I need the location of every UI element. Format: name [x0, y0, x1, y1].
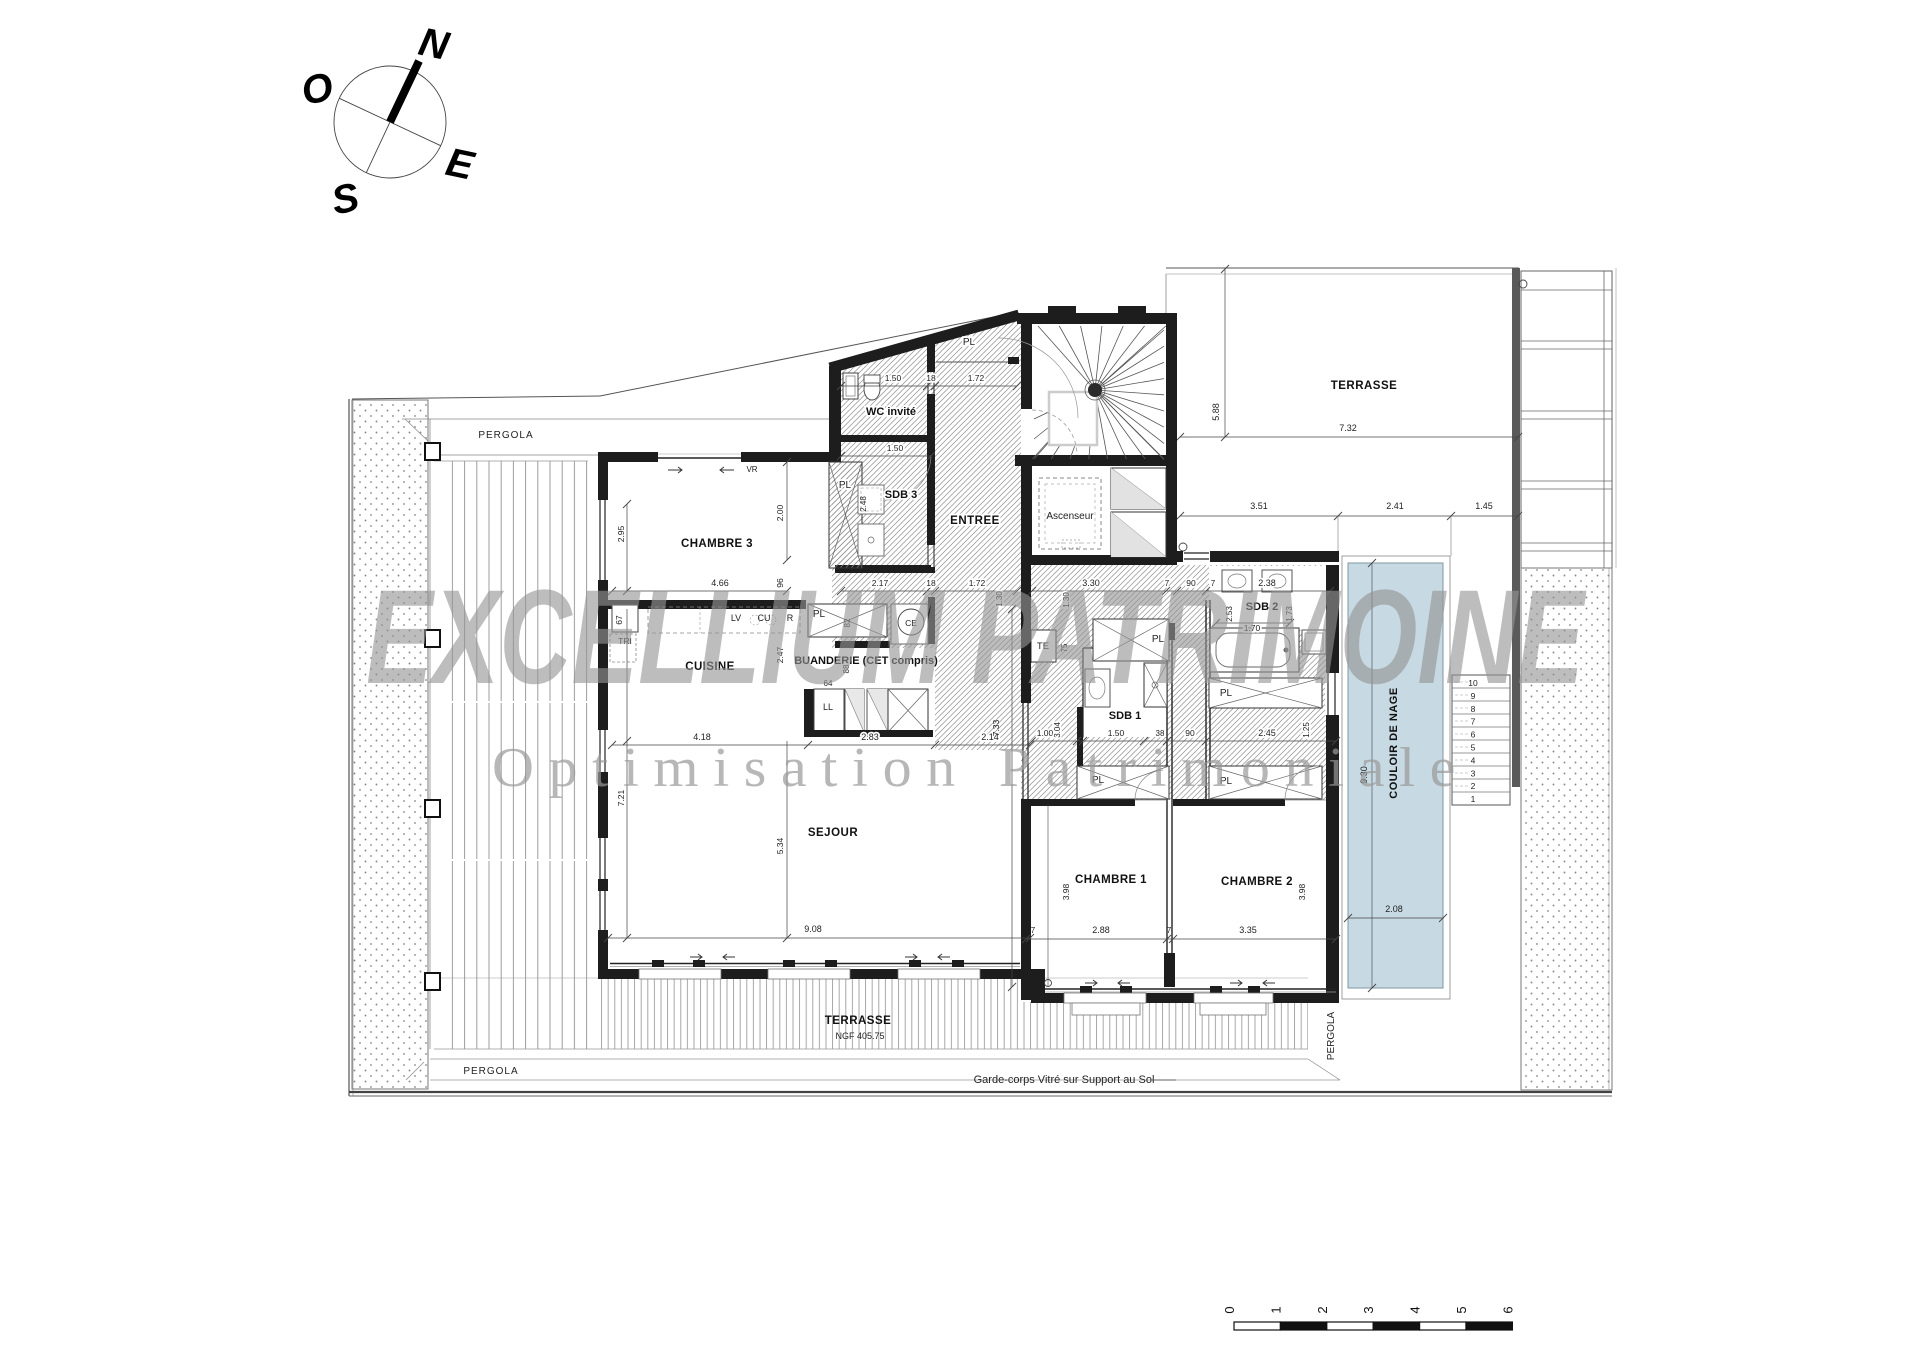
- svg-text:4: 4: [1471, 755, 1476, 765]
- svg-text:EXCELLIUM PATRIMOINE: EXCELLIUM PATRIMOINE: [366, 563, 1587, 712]
- svg-text:2.08: 2.08: [1385, 904, 1403, 914]
- svg-text:1.50: 1.50: [887, 443, 904, 453]
- svg-text:7.32: 7.32: [1339, 423, 1357, 433]
- svg-text:18: 18: [926, 373, 936, 383]
- svg-text:1.72: 1.72: [968, 373, 985, 383]
- svg-text:3.51: 3.51: [1250, 501, 1268, 511]
- svg-text:5.34: 5.34: [775, 837, 785, 854]
- svg-text:SEJOUR: SEJOUR: [808, 827, 858, 839]
- svg-text:7: 7: [1031, 926, 1036, 935]
- svg-text:2.48: 2.48: [859, 496, 868, 512]
- svg-text:4: 4: [1408, 1306, 1423, 1313]
- svg-text:9.08: 9.08: [804, 924, 822, 934]
- svg-text:0: 0: [1222, 1306, 1237, 1313]
- svg-text:3.04: 3.04: [1053, 722, 1062, 738]
- svg-text:Ascenseur: Ascenseur: [1046, 511, 1094, 522]
- svg-text:TERRASSE: TERRASSE: [825, 1015, 892, 1027]
- svg-text:6: 6: [1500, 1306, 1515, 1313]
- svg-text:3.98: 3.98: [1297, 883, 1307, 900]
- svg-text:1.50: 1.50: [885, 373, 902, 383]
- svg-text:5: 5: [1454, 1306, 1469, 1313]
- svg-text:1: 1: [1471, 794, 1476, 804]
- svg-text:1: 1: [1268, 1306, 1283, 1313]
- svg-text:CHAMBRE 1: CHAMBRE 1: [1075, 874, 1147, 886]
- svg-text:6: 6: [1471, 730, 1476, 740]
- svg-text:3.98: 3.98: [1061, 883, 1071, 900]
- svg-text:ENTREE: ENTREE: [950, 515, 1000, 527]
- svg-text:2.00: 2.00: [775, 504, 785, 521]
- svg-text:7: 7: [1167, 926, 1172, 935]
- svg-text:5: 5: [1471, 743, 1476, 753]
- svg-text:7: 7: [1471, 717, 1476, 727]
- svg-text:3: 3: [1471, 768, 1476, 778]
- svg-text:Garde-corps Vitré sur Support: Garde-corps Vitré sur Support au Sol: [974, 1074, 1155, 1086]
- svg-text:Optimisation Patrimoniale: Optimisation Patrimoniale: [492, 737, 1470, 799]
- svg-text:VR: VR: [746, 465, 757, 474]
- svg-text:PL: PL: [963, 337, 976, 348]
- svg-text:2.41: 2.41: [1386, 501, 1404, 511]
- svg-text:CHAMBRE 2: CHAMBRE 2: [1221, 876, 1293, 888]
- svg-text:2.88: 2.88: [1092, 925, 1110, 935]
- svg-text:5.88: 5.88: [1211, 403, 1221, 421]
- svg-text:SDB 3: SDB 3: [885, 489, 917, 501]
- svg-text:3: 3: [1361, 1306, 1376, 1313]
- svg-text:2: 2: [1471, 781, 1476, 791]
- svg-text:PERGOLA: PERGOLA: [463, 1066, 518, 1077]
- svg-text:NGF 405.75: NGF 405.75: [835, 1031, 884, 1041]
- svg-text:WC invité: WC invité: [866, 406, 916, 418]
- svg-text:TERRASSE: TERRASSE: [1331, 380, 1398, 392]
- svg-text:2: 2: [1315, 1306, 1330, 1313]
- svg-text:PERGOLA: PERGOLA: [478, 430, 533, 441]
- svg-text:PERGOLA: PERGOLA: [1326, 1012, 1337, 1061]
- svg-text:CHAMBRE 3: CHAMBRE 3: [681, 538, 753, 550]
- svg-text:7.33: 7.33: [991, 719, 1001, 736]
- svg-text:1.25: 1.25: [1302, 722, 1311, 738]
- svg-text:1.45: 1.45: [1475, 501, 1493, 511]
- svg-text:PL: PL: [839, 480, 852, 491]
- svg-text:3.35: 3.35: [1239, 925, 1257, 935]
- svg-text:2.95: 2.95: [616, 525, 626, 542]
